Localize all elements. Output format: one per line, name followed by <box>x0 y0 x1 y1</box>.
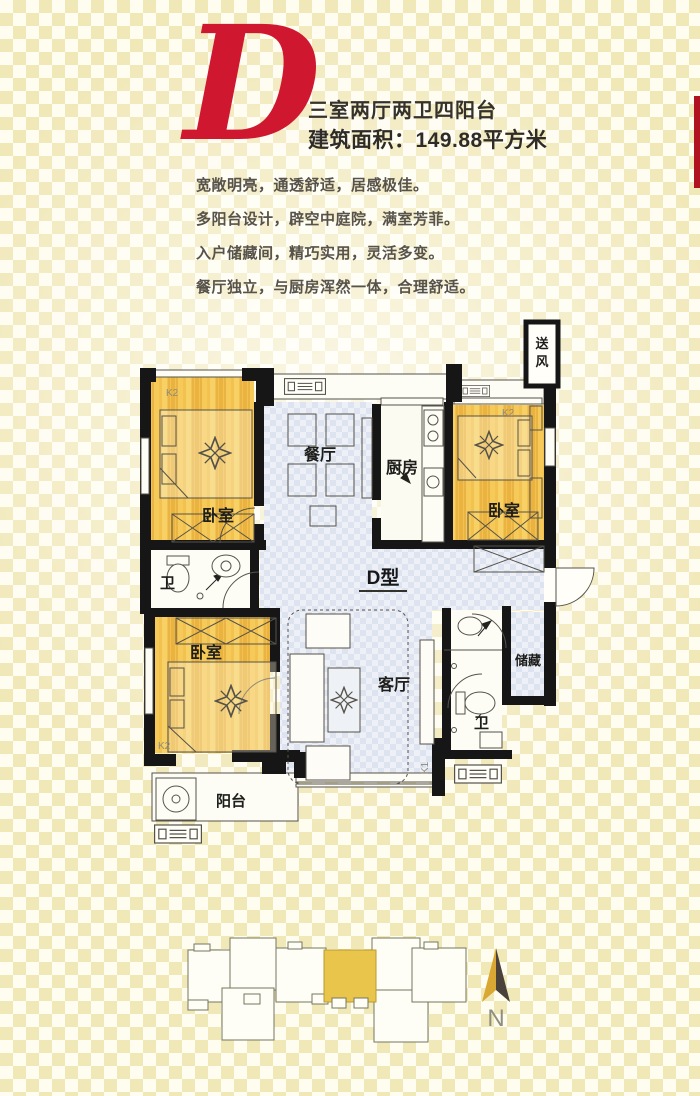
code-k2: K2 <box>166 388 179 399</box>
north-arrow: N <box>474 944 518 1032</box>
label-balcony: 阳台 <box>216 792 246 810</box>
label-storage: 储藏 <box>514 653 541 668</box>
shaft-char: 风 <box>535 354 548 369</box>
balcony-washer <box>156 778 196 820</box>
code-k2: K2 <box>502 408 515 419</box>
highlighted-unit <box>324 950 376 1002</box>
label-unit-type: D型 <box>367 566 400 589</box>
label-bedroom-bl: 卧室 <box>190 643 222 662</box>
floorplan-page: { "header": { "letter": "D", "title": "三… <box>0 0 700 1096</box>
plan-area-text: 建筑面积：149.88平方米 <box>308 124 547 154</box>
description-block: 宽敞明亮，通透舒适，居感极佳。 多阳台设计，辟空中庭院，满室芳菲。 入户储藏间，… <box>196 178 475 314</box>
shaft-char: 送 <box>534 336 549 351</box>
page-edge-red-strip <box>694 96 700 188</box>
floor-plan: 送 风 <box>138 318 620 858</box>
air-supply-shaft: 送 风 <box>526 322 558 386</box>
plan-letter: D <box>184 6 321 164</box>
description-line: 多阳台设计，辟空中庭院，满室芳菲。 <box>196 212 475 227</box>
kitchen-furniture <box>422 406 444 542</box>
label-bath-right: 卫 <box>474 715 489 732</box>
label-living: 客厅 <box>378 675 410 694</box>
plan-title: 三室两厅两卫四阳台 <box>308 94 497 123</box>
entry-door <box>544 568 594 606</box>
code-k2: K2 <box>158 741 171 752</box>
north-label: N <box>487 1005 504 1032</box>
building-key-plan <box>182 932 472 1044</box>
label-dining: 餐厅 <box>303 445 336 464</box>
code-k1: K1 <box>420 761 431 774</box>
description-line: 宽敞明亮，通透舒适，居感极佳。 <box>196 178 475 193</box>
description-line: 餐厅独立，与厨房浑然一体，合理舒适。 <box>196 280 475 295</box>
label-bath-left: 卫 <box>160 575 175 592</box>
label-bedroom-tl: 卧室 <box>202 506 234 525</box>
label-kitchen: 厨房 <box>386 458 418 477</box>
label-bedroom-tr: 卧室 <box>488 501 520 520</box>
description-line: 入户储藏间，精巧实用，灵活多变。 <box>196 246 475 261</box>
